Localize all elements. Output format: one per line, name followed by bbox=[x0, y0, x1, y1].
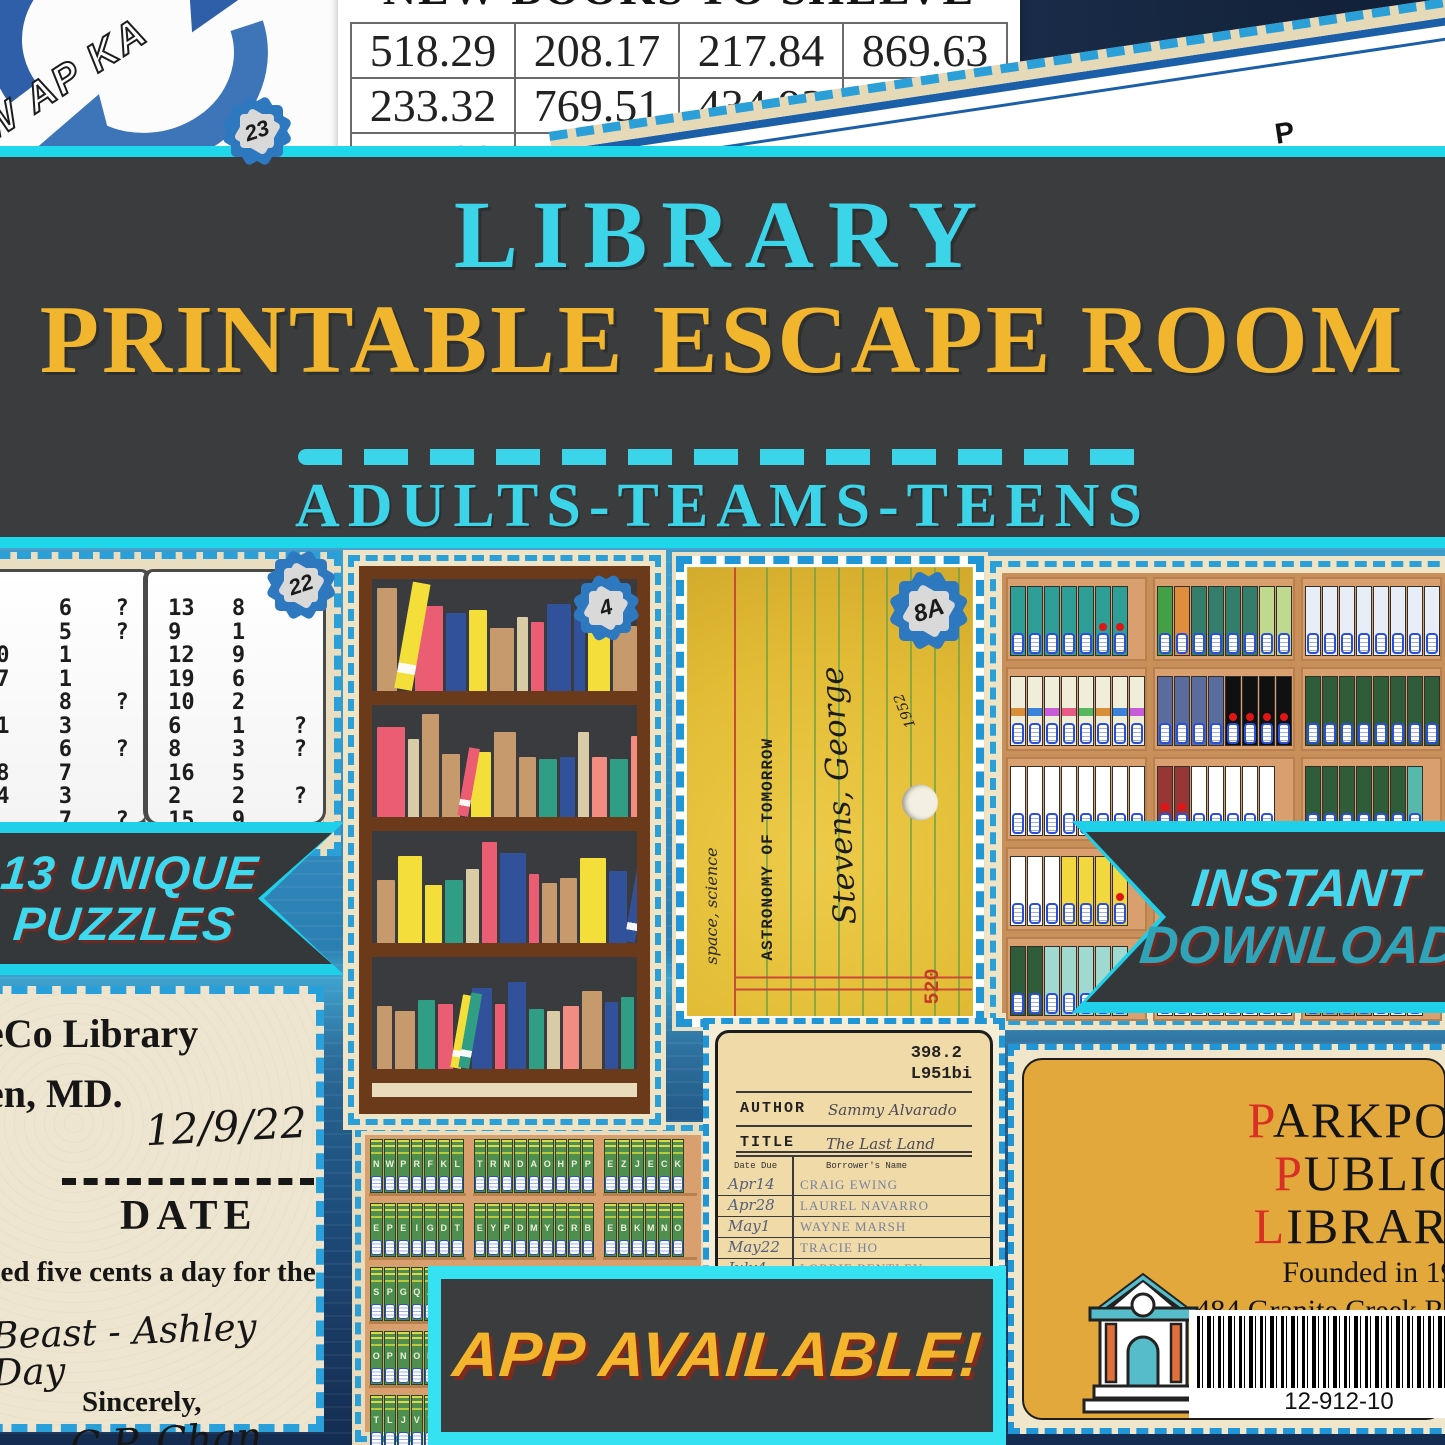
book-number: 5 bbox=[59, 622, 116, 646]
barcode: 12-912-10 bbox=[1189, 1310, 1445, 1418]
book-spine bbox=[377, 1006, 392, 1069]
book-number bbox=[294, 692, 321, 716]
volume-letter: I bbox=[412, 1224, 423, 1233]
binder-spine bbox=[1027, 856, 1043, 926]
volume-letter: R bbox=[412, 1160, 423, 1169]
label-sticker bbox=[1261, 633, 1273, 654]
label-sticker bbox=[1176, 633, 1188, 654]
binder-spine bbox=[1095, 676, 1111, 746]
volume-letter: B bbox=[583, 1224, 594, 1233]
red-dot-sticker bbox=[1263, 713, 1271, 721]
volume-letter: Y bbox=[488, 1224, 499, 1233]
encyclopedia-book: V bbox=[411, 1395, 424, 1445]
book-number: ? bbox=[115, 598, 143, 622]
call-line: L951bi bbox=[911, 1064, 972, 1085]
label-sticker bbox=[1341, 723, 1353, 744]
label-sticker bbox=[529, 1176, 540, 1191]
book-number bbox=[115, 716, 143, 740]
book-spine bbox=[542, 883, 557, 943]
label-sticker bbox=[385, 1432, 396, 1445]
binder-spine bbox=[1373, 676, 1389, 746]
label-sticker bbox=[425, 1176, 436, 1191]
punch-hole bbox=[902, 784, 938, 820]
book-number: ? bbox=[115, 692, 143, 716]
badge-number: 4 bbox=[571, 573, 642, 644]
title-banner: LIBRARY PRINTABLE ESCAPE ROOM ADULTS-TEA… bbox=[0, 157, 1445, 547]
title-line-1: LIBRARY bbox=[0, 187, 1445, 283]
binder-spine bbox=[1225, 586, 1241, 656]
title-label: TITLE bbox=[740, 1135, 795, 1150]
label-sticker bbox=[632, 1176, 643, 1191]
label-sticker bbox=[1324, 723, 1336, 744]
red-dot-sticker bbox=[1229, 713, 1237, 721]
book-spine bbox=[442, 754, 460, 817]
label-sticker bbox=[1392, 633, 1404, 654]
book-spine bbox=[547, 1011, 560, 1069]
borrower-name: LAUREL NAVARRO bbox=[800, 1199, 929, 1212]
initial-letter: L bbox=[1254, 1198, 1287, 1254]
volume-letter: O bbox=[412, 1352, 423, 1361]
label-sticker bbox=[1409, 723, 1421, 744]
label-sticker bbox=[632, 1240, 643, 1255]
label-sticker bbox=[542, 1240, 553, 1255]
binder-spine bbox=[1424, 676, 1440, 746]
binder-stripe bbox=[1028, 708, 1042, 716]
book-spine bbox=[529, 874, 539, 943]
encyclopedia-shelf: TRNDAOHPP bbox=[473, 1139, 597, 1196]
book-spine bbox=[605, 1002, 618, 1069]
librarian-signature: C.P. Chan bbox=[69, 1417, 263, 1445]
red-dot-sticker bbox=[1280, 713, 1288, 721]
book-number: 13 bbox=[168, 598, 232, 622]
binder-stripe bbox=[1011, 708, 1025, 716]
call-number: 520 bbox=[924, 968, 944, 1004]
label-sticker bbox=[1080, 633, 1092, 654]
label-sticker bbox=[371, 1240, 382, 1255]
date-column-header: Date Due bbox=[734, 1162, 777, 1171]
binder-spine bbox=[1027, 676, 1043, 746]
overdue-letter-card: eCo Library en, MD. 12/9/22 DATE ged fiv… bbox=[0, 986, 324, 1432]
label-sticker bbox=[673, 1176, 684, 1191]
encyclopedia-book: E bbox=[370, 1203, 383, 1257]
label-sticker bbox=[1097, 633, 1109, 654]
shelf-cell bbox=[1006, 577, 1147, 661]
book-number: 7 bbox=[0, 692, 59, 716]
due-date: Apr28 bbox=[728, 1198, 775, 1213]
bookcase bbox=[359, 566, 650, 1114]
volume-letter: B bbox=[619, 1224, 630, 1233]
barcode-bars bbox=[1197, 1316, 1445, 1388]
binder-spine bbox=[1061, 676, 1077, 746]
book-number: 11 bbox=[0, 716, 59, 740]
label-sticker bbox=[1210, 633, 1222, 654]
book-spine bbox=[621, 997, 634, 1069]
red-dot-sticker bbox=[1161, 803, 1169, 811]
library-name: PARKPOO PUBLIC LIBRARY bbox=[1154, 1094, 1445, 1253]
label-sticker bbox=[398, 1304, 409, 1319]
encyclopedia-book: Y bbox=[541, 1203, 554, 1257]
label-sticker bbox=[1176, 723, 1188, 744]
borrower-name: WAYNE MARSH bbox=[800, 1220, 906, 1233]
label-sticker bbox=[529, 1240, 540, 1255]
encyclopedia-book: R bbox=[411, 1139, 424, 1193]
volume-letter: M bbox=[529, 1224, 540, 1233]
binder-spine bbox=[1208, 676, 1224, 746]
binder-spine bbox=[1112, 676, 1128, 746]
name-rest: UBLIC bbox=[1304, 1145, 1445, 1201]
binder-stripe bbox=[1079, 708, 1093, 716]
book-number bbox=[294, 645, 321, 669]
volume-letter: P bbox=[385, 1352, 396, 1361]
label-sticker bbox=[1409, 633, 1421, 654]
label-sticker bbox=[371, 1304, 382, 1319]
badge-number: 22 bbox=[264, 548, 337, 621]
book-number-row: 102 bbox=[156, 692, 321, 716]
shelf-cell bbox=[1153, 667, 1294, 751]
label-sticker bbox=[542, 1176, 553, 1191]
book-spine bbox=[560, 878, 577, 943]
binder-spine bbox=[1010, 766, 1026, 836]
binder-spine bbox=[1276, 676, 1292, 746]
binder-spine bbox=[1339, 586, 1355, 656]
encyclopedia-book: P bbox=[501, 1203, 514, 1257]
puzzle-badge-4: 4 bbox=[578, 580, 634, 636]
label-sticker bbox=[583, 1240, 594, 1255]
rule-line bbox=[736, 1125, 972, 1127]
label-sticker bbox=[1278, 633, 1290, 654]
label-sticker bbox=[515, 1240, 526, 1255]
book-number: 14 bbox=[0, 786, 59, 810]
ribbon-line: 13 UNIQUE bbox=[0, 848, 261, 899]
volume-letter: P bbox=[569, 1160, 580, 1169]
book-number-row: 46? bbox=[0, 739, 144, 763]
binder-spine bbox=[1293, 586, 1294, 656]
label-sticker bbox=[385, 1304, 396, 1319]
book-number: 2 bbox=[232, 786, 294, 810]
binder-spine bbox=[1044, 766, 1060, 836]
volume-letter: W bbox=[385, 1160, 396, 1169]
label-sticker bbox=[569, 1240, 580, 1255]
checkout-row: Apr28LAUREL NAVARRO bbox=[718, 1196, 990, 1217]
puzzle-badge-8a: 8A bbox=[896, 578, 962, 644]
volume-letter: Z bbox=[619, 1160, 630, 1169]
instant-download-ribbon: INSTANT DOWNLOAD bbox=[1072, 821, 1445, 1013]
book-spine bbox=[508, 982, 526, 1069]
book-number: 3 bbox=[0, 598, 59, 622]
label-sticker bbox=[605, 1176, 616, 1191]
puzzles-ribbon: 13 UNIQUE PUZZLES bbox=[0, 822, 344, 975]
encyclopedia-book: O bbox=[370, 1331, 383, 1385]
volume-letter: P bbox=[583, 1160, 594, 1169]
label-sticker bbox=[1063, 723, 1075, 744]
encyclopedia-book: S bbox=[370, 1267, 383, 1321]
table-cell: 208.17 bbox=[515, 23, 679, 78]
volume-letter: G bbox=[425, 1224, 436, 1233]
book-number bbox=[115, 763, 143, 787]
ribbon-line: INSTANT bbox=[1189, 860, 1421, 917]
book-spine bbox=[446, 613, 466, 691]
label-sticker bbox=[1159, 633, 1171, 654]
name-rest: IBRARY bbox=[1286, 1198, 1445, 1254]
volume-letter: K bbox=[632, 1224, 643, 1233]
label-sticker bbox=[371, 1368, 382, 1383]
book-number: 19 bbox=[168, 669, 232, 693]
volume-letter: K bbox=[439, 1160, 450, 1169]
book-spine bbox=[529, 1009, 544, 1069]
label-sticker bbox=[515, 1176, 526, 1191]
book-number-row: 78? bbox=[0, 692, 144, 716]
volume-letter: O bbox=[542, 1160, 553, 1169]
encyclopedia-shelf: NWPRFKL bbox=[369, 1139, 466, 1196]
encyclopedia-book: D bbox=[514, 1139, 527, 1193]
book-spine bbox=[466, 869, 479, 943]
binder-spine bbox=[1174, 676, 1190, 746]
binder-spine bbox=[1027, 586, 1043, 656]
binder-spine bbox=[1276, 586, 1292, 656]
puzzle-badge-22: 22 bbox=[272, 556, 330, 614]
encyclopedia-book: C bbox=[555, 1203, 568, 1257]
borrower-name: TRACIE HO bbox=[800, 1241, 878, 1254]
label-sticker bbox=[452, 1240, 463, 1255]
handwritten-date: 12/9/22 bbox=[144, 1102, 308, 1152]
label-sticker bbox=[1046, 813, 1058, 834]
label-sticker bbox=[1307, 633, 1319, 654]
book-number: 6 bbox=[59, 739, 116, 763]
label-sticker bbox=[1227, 723, 1239, 744]
book-number bbox=[294, 669, 321, 693]
book-number bbox=[115, 786, 143, 810]
volume-letter: D bbox=[515, 1160, 526, 1169]
encyclopedia-book: N bbox=[397, 1331, 410, 1385]
binder-stripe bbox=[1096, 708, 1110, 716]
label-sticker bbox=[1046, 723, 1058, 744]
binder-spine bbox=[1112, 586, 1128, 656]
book-spine bbox=[560, 757, 575, 817]
borrower-name: CRAIG EWING bbox=[800, 1178, 898, 1191]
book-number: 1 bbox=[59, 645, 116, 669]
puzzle-badge-23: 23 bbox=[228, 102, 286, 160]
encyclopedia-shelf: EZJECK bbox=[603, 1139, 697, 1196]
encyclopedia-book: D bbox=[514, 1203, 527, 1257]
call-line: 398.2 bbox=[911, 1043, 972, 1064]
book-number-row: 22? bbox=[156, 786, 321, 810]
due-date: Apr14 bbox=[728, 1177, 775, 1192]
label-sticker bbox=[646, 1176, 657, 1191]
label-sticker bbox=[1375, 723, 1387, 744]
label-sticker bbox=[556, 1240, 567, 1255]
encyclopedia-book: P bbox=[384, 1203, 397, 1257]
volume-letter: N bbox=[371, 1160, 382, 1169]
book-number: 16 bbox=[168, 763, 232, 787]
book-number: 17 bbox=[0, 669, 59, 693]
volume-letter: J bbox=[398, 1416, 409, 1425]
label-sticker bbox=[556, 1176, 567, 1191]
binder-spine bbox=[1010, 856, 1026, 926]
volume-letter: F bbox=[425, 1160, 436, 1169]
book-number: 7 bbox=[59, 763, 116, 787]
table-cell: 233.32 bbox=[351, 78, 515, 133]
encyclopedia-book: E bbox=[604, 1139, 617, 1193]
volume-letter: E bbox=[605, 1160, 616, 1169]
encyclopedia-book: Q bbox=[411, 1267, 424, 1321]
label-sticker bbox=[569, 1176, 580, 1191]
label-sticker bbox=[1063, 633, 1075, 654]
book-number: ? bbox=[294, 716, 321, 740]
binder-stripe bbox=[1045, 708, 1059, 716]
label-sticker bbox=[398, 1368, 409, 1383]
binder-spine bbox=[1356, 586, 1372, 656]
binder-stripe bbox=[1062, 708, 1076, 716]
encyclopedia-book: T bbox=[370, 1395, 383, 1445]
book-spine bbox=[582, 991, 602, 1069]
volume-letter: P bbox=[385, 1224, 396, 1233]
book-number: 5 bbox=[232, 763, 294, 787]
volume-letter: O bbox=[673, 1224, 684, 1233]
label-sticker bbox=[619, 1176, 630, 1191]
encyclopedia-book: N bbox=[501, 1139, 514, 1193]
encyclopedia-book: B bbox=[618, 1203, 631, 1257]
binder-spine bbox=[1129, 676, 1145, 746]
encyclopedia-shelf: EBKMNO bbox=[603, 1203, 697, 1260]
encyclopedia-book: G bbox=[397, 1267, 410, 1321]
label-sticker bbox=[1029, 993, 1041, 1014]
encyclopedia-book: K bbox=[438, 1139, 451, 1193]
label-sticker bbox=[1046, 633, 1058, 654]
table-cell: 518.29 bbox=[351, 23, 515, 78]
label-sticker bbox=[398, 1432, 409, 1445]
label-sticker bbox=[412, 1240, 423, 1255]
handwritten-line: Beast - Ashley Day bbox=[0, 1306, 317, 1391]
binder-spine bbox=[1010, 676, 1026, 746]
binder-spine bbox=[1027, 946, 1043, 1016]
book-number: ? bbox=[294, 786, 321, 810]
encyclopedia-book: B bbox=[582, 1203, 595, 1257]
book-spine bbox=[418, 1000, 435, 1069]
binder-spine bbox=[1225, 676, 1241, 746]
label-sticker bbox=[1046, 993, 1058, 1014]
book-number: 1 bbox=[0, 622, 59, 646]
book-spine bbox=[578, 732, 589, 817]
label-sticker bbox=[673, 1240, 684, 1255]
label-sticker bbox=[1244, 633, 1256, 654]
book-spine bbox=[609, 871, 627, 943]
book-spine bbox=[408, 739, 419, 817]
red-dot-sticker bbox=[1099, 623, 1107, 631]
volume-letter: A bbox=[529, 1160, 540, 1169]
volume-letter: E bbox=[371, 1224, 382, 1233]
app-available-banner: APP AVAILABLE! bbox=[428, 1266, 1006, 1445]
label-sticker bbox=[1159, 723, 1171, 744]
label-sticker bbox=[488, 1240, 499, 1255]
binder-spine bbox=[1390, 586, 1406, 656]
book-number-row: 15? bbox=[0, 622, 144, 646]
volume-letter: E bbox=[605, 1224, 616, 1233]
label-sticker bbox=[425, 1240, 436, 1255]
binder-stripe bbox=[1113, 708, 1127, 716]
book-spine bbox=[580, 858, 606, 943]
book-spine bbox=[398, 856, 422, 943]
label-sticker bbox=[412, 1432, 423, 1445]
divider-strip-top bbox=[0, 146, 1445, 157]
binder-spine bbox=[1407, 586, 1423, 656]
label-sticker bbox=[371, 1432, 382, 1445]
title-line-2: PRINTABLE ESCAPE ROOM bbox=[0, 291, 1445, 388]
label-sticker bbox=[1426, 723, 1438, 744]
encyclopedia-book: P bbox=[582, 1139, 595, 1193]
label-sticker bbox=[502, 1176, 513, 1191]
label-sticker bbox=[475, 1240, 486, 1255]
encyclopedia-book: K bbox=[672, 1139, 685, 1193]
encyclopedia-book: E bbox=[645, 1139, 658, 1193]
binder-spine bbox=[1208, 586, 1224, 656]
volume-letter: M bbox=[646, 1224, 657, 1233]
volume-letter: E bbox=[475, 1224, 486, 1233]
volume-letter: V bbox=[412, 1416, 423, 1425]
shelf-cell bbox=[1301, 577, 1442, 661]
encyclopedia-book: R bbox=[568, 1203, 581, 1257]
label-sticker bbox=[452, 1176, 463, 1191]
letter-city: en, MD. bbox=[0, 1070, 123, 1117]
volume-letter: P bbox=[502, 1224, 513, 1233]
book-spine bbox=[495, 1004, 505, 1069]
badge-number: 23 bbox=[220, 94, 293, 167]
book-number: 1 bbox=[232, 716, 294, 740]
binder-spine bbox=[1441, 586, 1442, 656]
book-spine bbox=[547, 604, 571, 691]
encyclopedia-book: P bbox=[384, 1267, 397, 1321]
label-sticker bbox=[1278, 723, 1290, 744]
subject-note: space, science bbox=[704, 847, 720, 964]
label-sticker bbox=[1426, 633, 1438, 654]
binder-spine bbox=[1044, 676, 1060, 746]
label-sticker bbox=[1114, 723, 1126, 744]
encyclopedia-book: P bbox=[384, 1331, 397, 1385]
volume-letter: D bbox=[515, 1224, 526, 1233]
book-spine bbox=[519, 757, 536, 817]
book-number: 6 bbox=[59, 598, 116, 622]
author-label: AUTHOR bbox=[740, 1101, 806, 1116]
rule-line bbox=[736, 1091, 972, 1093]
encyclopedia-book: P bbox=[568, 1139, 581, 1193]
book-number: 6 bbox=[232, 669, 294, 693]
volume-letter: T bbox=[452, 1224, 463, 1233]
binder-spine bbox=[1010, 946, 1026, 1016]
label-sticker bbox=[1012, 813, 1024, 834]
label-sticker bbox=[605, 1240, 616, 1255]
binder-stripe bbox=[1130, 708, 1144, 716]
label-sticker bbox=[1080, 723, 1092, 744]
binder-spine bbox=[1191, 676, 1207, 746]
encyclopedia-book: Y bbox=[487, 1203, 500, 1257]
binder-spine bbox=[1322, 586, 1338, 656]
encyclopedia-book: E bbox=[604, 1203, 617, 1257]
book-number: 8 bbox=[59, 692, 116, 716]
book-spine bbox=[563, 1006, 579, 1069]
listing-image: AW AP KA 23 NEW BOOKS TO SHELVE 518.29 2… bbox=[0, 0, 1445, 1445]
book-number: 12 bbox=[168, 645, 232, 669]
ribbon-line: DOWNLOAD bbox=[1137, 917, 1445, 974]
label-sticker bbox=[439, 1240, 450, 1255]
label-sticker bbox=[398, 1240, 409, 1255]
label-sticker bbox=[412, 1368, 423, 1383]
label-sticker bbox=[1324, 633, 1336, 654]
encyclopedia-book: J bbox=[397, 1395, 410, 1445]
label-sticker bbox=[385, 1368, 396, 1383]
encyclopedia-book: W bbox=[384, 1139, 397, 1193]
label-sticker bbox=[1012, 993, 1024, 1014]
book-spine bbox=[494, 732, 516, 817]
label-sticker bbox=[646, 1240, 657, 1255]
